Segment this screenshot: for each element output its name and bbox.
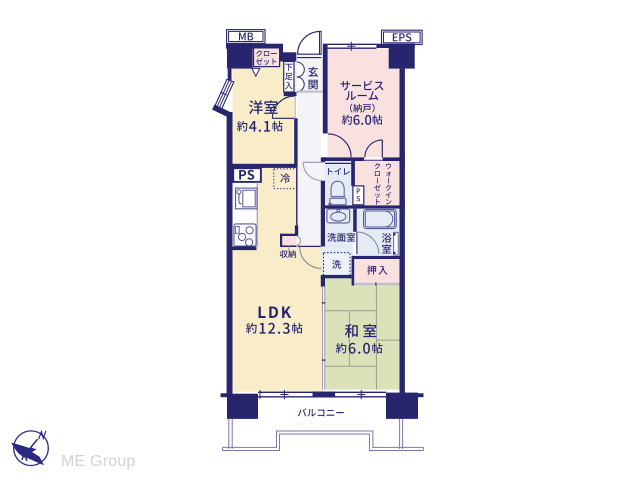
svg-text:ME Group: ME Group xyxy=(61,453,136,470)
